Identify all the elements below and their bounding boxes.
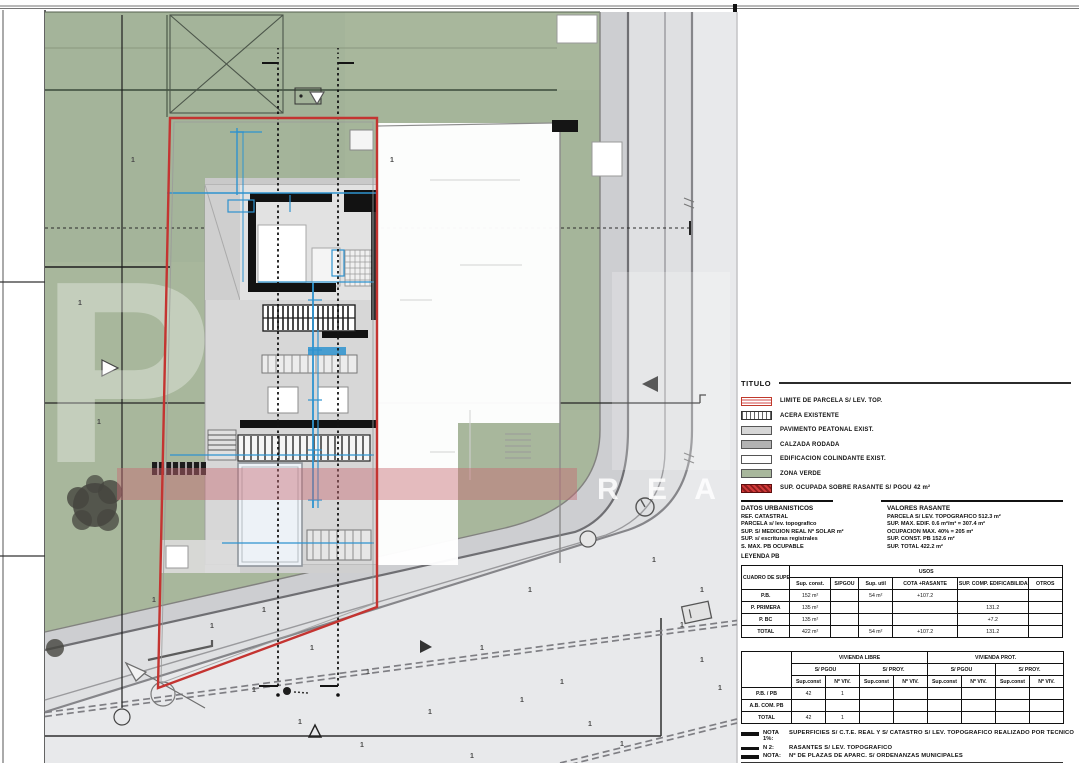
spot-mark: 1	[390, 157, 394, 164]
table-cell	[1028, 614, 1062, 626]
table-cell: USOS	[790, 566, 1063, 578]
info-columns: DATOS URBANISTICOS REF. CATASTRAL PARCEL…	[741, 505, 1071, 563]
spot-mark: 1	[700, 587, 704, 594]
spot-mark: 1	[528, 587, 532, 594]
pole-icon	[283, 687, 291, 695]
legend-row: EDIFICACION COLINDANTE EXIST.	[741, 452, 1071, 467]
drawing-sheet: P R E A 1111111111111111111111111 TITULO…	[0, 0, 1079, 763]
table-cell: A.B. COM. PB	[742, 700, 792, 712]
table-cell: S/ PGOU	[928, 664, 996, 676]
table-cell	[859, 614, 893, 626]
table-cell: P.B. / PB	[742, 688, 792, 700]
table-cell: P. BC	[742, 614, 790, 626]
note-text: RASANTES S/ LEV. TOPOGRAFICO	[789, 745, 892, 751]
valores-block: VALORES RASANTE PARCELA S/ LEV. TOPOGRAF…	[887, 505, 1071, 563]
legend-label: ACERA EXISTENTE	[780, 413, 839, 419]
spot-mark: 1	[152, 597, 156, 604]
table-cell	[830, 626, 858, 638]
spot-mark: 1	[588, 721, 592, 728]
louver-band-1	[263, 305, 355, 331]
datos-header: DATOS URBANISTICOS	[741, 505, 887, 513]
table-cell: CUADRO DE SUPERF.	[742, 566, 790, 590]
spot-mark: 1	[78, 300, 82, 307]
table-cell: 152 m²	[790, 590, 830, 602]
table-cell: COTA +RASANTE	[893, 578, 958, 590]
datos-line: S. MAX. PB OCUPABLE	[741, 544, 887, 552]
table-cell: +7.2	[957, 614, 1028, 626]
table-cell: Sup. util	[859, 578, 893, 590]
valores-header: VALORES RASANTE	[887, 505, 1071, 513]
legend-label: SUP. OCUPADA SOBRE RASANTE S/ PGOU 42 m²	[780, 485, 930, 491]
datos-footer: LEYENDA PB	[741, 554, 887, 562]
valores-line: SUP. MAX. EDIF. 0.6 m²/m² = 307.4 m²	[887, 521, 1071, 529]
datos-block: DATOS URBANISTICOS REF. CATASTRAL PARCEL…	[741, 505, 887, 563]
table-cell	[1030, 700, 1064, 712]
table-cell	[893, 602, 958, 614]
table-cell: Sup.const	[860, 676, 894, 688]
watermark-band	[117, 468, 577, 500]
table-cell	[830, 602, 858, 614]
table-cell: S/ PGOU	[792, 664, 860, 676]
legend: LIMITE DE PARCELA S/ LEV. TOP.ACERA EXIS…	[741, 394, 1071, 496]
datos-line: SUP. S/ MEDICION REAL Nº SOLAR m²	[741, 529, 887, 537]
spot-mark: 1	[718, 685, 722, 692]
legend-swatch-dark-icon	[741, 440, 772, 449]
legend-label: LIMITE DE PARCELA S/ LEV. TOP.	[780, 398, 882, 404]
table-cell: Nº VIV.	[1030, 676, 1064, 688]
note-bar	[741, 747, 759, 751]
legend-label: ZONA VERDE	[780, 471, 821, 477]
table-cell	[894, 688, 928, 700]
section-divider	[741, 500, 1071, 503]
grid-room	[345, 250, 373, 286]
table-cell: 42	[792, 712, 826, 724]
louver-band-3	[307, 530, 371, 560]
table-cell: Nº VIV.	[962, 676, 996, 688]
table-cell: S/ PROY.	[996, 664, 1064, 676]
table-cell: 135 m²	[790, 614, 830, 626]
title-rule	[779, 382, 1071, 384]
legend-title: TITULO	[741, 379, 771, 388]
note-text: SUPERFICIES S/ C.T.E. REAL Y S/ CATASTRO…	[789, 730, 1074, 736]
table-cell: S/PGOU	[830, 578, 858, 590]
legend-label: CALZADA RODADA	[780, 442, 840, 448]
table-cell	[859, 602, 893, 614]
table-cell: 131.2	[957, 602, 1028, 614]
louver-band-2	[238, 435, 370, 461]
legend-row: ACERA EXISTENTE	[741, 409, 1071, 424]
note-label: NOTA 1%:	[763, 730, 789, 742]
table-cell: P. PRIMERA	[742, 602, 790, 614]
table-cell	[1030, 712, 1064, 724]
table-cell: VIVIENDA LIBRE	[792, 652, 928, 664]
spot-mark: 1	[700, 657, 704, 664]
table-cell	[928, 700, 962, 712]
legend-row: CALZADA RODADA	[741, 438, 1071, 453]
table-cell	[1028, 602, 1062, 614]
stripe-band	[262, 355, 357, 373]
note-bar	[741, 755, 759, 759]
table-cell: Nº VIV.	[826, 676, 860, 688]
spot-mark: 1	[360, 742, 364, 749]
spot-mark: 1	[310, 645, 314, 652]
manhole-icon	[580, 531, 596, 547]
table-cell	[1030, 688, 1064, 700]
site-plan-drawing: P R E A 1111111111111111111111111	[0, 0, 740, 763]
table-cell: 131.2	[957, 626, 1028, 638]
table-cell	[826, 700, 860, 712]
table-cell: 54 m²	[859, 590, 893, 602]
legend-row: LIMITE DE PARCELA S/ LEV. TOP.	[741, 394, 1071, 409]
spot-mark: 1	[97, 419, 101, 426]
table-cell	[830, 614, 858, 626]
spot-mark: 1	[262, 607, 266, 614]
legend-label: EDIFICACION COLINDANTE EXIST.	[780, 456, 886, 462]
table-cell	[962, 688, 996, 700]
legend-swatch-white-icon	[741, 455, 772, 464]
spot-mark: 1	[131, 157, 135, 164]
table-cell: SUP. COMP. EDIFICABILIDAD	[957, 578, 1028, 590]
table-cell: P.B.	[742, 590, 790, 602]
table-cell: OTROS	[1028, 578, 1062, 590]
table-cell: S/ PROY.	[860, 664, 928, 676]
table-cell	[996, 688, 1030, 700]
table-cell	[894, 700, 928, 712]
table-cell: Sup.const	[792, 676, 826, 688]
table-cell: 42	[792, 688, 826, 700]
table-cell	[957, 590, 1028, 602]
spot-mark: 1	[520, 697, 524, 704]
spot-mark: 1	[680, 622, 684, 629]
table-cell	[962, 700, 996, 712]
table-cell: TOTAL	[742, 712, 792, 724]
table-cell	[962, 712, 996, 724]
note-row: NOTA: Nº DE PLAZAS DE APARC. S/ ORDENANZ…	[741, 753, 1071, 759]
spot-mark: 1	[366, 669, 370, 676]
spot-mark: 1	[210, 623, 214, 630]
table-cell: TOTAL	[742, 626, 790, 638]
viviendas-table: VIVIENDA LIBREVIVIENDA PROT.S/ PGOUS/ PR…	[741, 651, 1064, 724]
table-cell	[894, 712, 928, 724]
table-cell	[928, 712, 962, 724]
note-label: NOTA:	[763, 753, 789, 759]
datos-line: SUP. s/ escrituras registrales	[741, 536, 887, 544]
valores-line: SUP. CONST. PB 152.6 m²	[887, 536, 1071, 544]
table-cell	[830, 590, 858, 602]
table-cell	[928, 688, 962, 700]
legend-row: PAVIMENTO PEATONAL EXIST.	[741, 423, 1071, 438]
legend-swatch-light-icon	[741, 426, 772, 435]
spot-mark: 1	[428, 709, 432, 716]
note-row: N 2: RASANTES S/ LEV. TOPOGRAFICO	[741, 745, 1071, 751]
legend-row: ZONA VERDE	[741, 467, 1071, 482]
table-cell: 1	[826, 712, 860, 724]
table-cell	[792, 700, 826, 712]
legend-swatch-dash-icon	[741, 411, 772, 420]
note-bar	[741, 732, 759, 736]
legend-swatch-green-icon	[741, 469, 772, 478]
spot-mark: 1	[470, 753, 474, 760]
table-cell: Sup.const	[928, 676, 962, 688]
legend-swatch-occupied-icon	[741, 484, 772, 493]
note-text: Nº DE PLAZAS DE APARC. S/ ORDENANZAS MUN…	[789, 753, 963, 759]
spot-mark: 1	[480, 645, 484, 652]
table-cell	[1028, 626, 1062, 638]
legend-row: SUP. OCUPADA SOBRE RASANTE S/ PGOU 42 m²	[741, 481, 1071, 496]
table-cell	[860, 712, 894, 724]
table-cell	[996, 700, 1030, 712]
legend-title-row: TITULO	[741, 378, 1071, 388]
table-cell: Sup. const.	[790, 578, 830, 590]
areas-table: CUADRO DE SUPERF.USOSSup. const.S/PGOUSu…	[741, 565, 1063, 638]
legend-label: PAVIMENTO PEATONAL EXIST.	[780, 427, 874, 433]
spot-mark: 1	[298, 719, 302, 726]
table-cell: 135 m²	[790, 602, 830, 614]
table-cell: Nº VIV.	[894, 676, 928, 688]
table-cell: 54 m²	[859, 626, 893, 638]
datos-line: REF. CATASTRAL	[741, 514, 887, 522]
note-label: N 2:	[763, 745, 789, 751]
spot-mark: 1	[620, 741, 624, 748]
table-cell	[860, 688, 894, 700]
table-cell	[1028, 590, 1062, 602]
table-cell: VIVIENDA PROT.	[928, 652, 1064, 664]
table-cell	[742, 652, 792, 688]
spot-mark: 1	[652, 557, 656, 564]
legend-swatch-boundary-icon	[741, 397, 772, 406]
note-row: NOTA 1%: SUPERFICIES S/ C.T.E. REAL Y S/…	[741, 730, 1071, 742]
spot-mark: 1	[252, 687, 256, 694]
spot-mark: 1	[560, 679, 564, 686]
table-cell	[996, 712, 1030, 724]
table-cell	[860, 700, 894, 712]
table-cell: 1	[826, 688, 860, 700]
table-cell: +107.2	[893, 626, 958, 638]
notes: NOTA 1%: SUPERFICIES S/ C.T.E. REAL Y S/…	[741, 730, 1071, 759]
watermark-rea: R E A	[597, 473, 726, 506]
datos-line: PARCELA s/ lev. topografico	[741, 521, 887, 529]
table-cell: 422 m²	[790, 626, 830, 638]
valores-line: SUP. TOTAL 422.2 m²	[887, 544, 1071, 552]
table-cell	[893, 614, 958, 626]
title-block-panel: TITULO LIMITE DE PARCELA S/ LEV. TOP.ACE…	[741, 0, 1071, 763]
table-cell: Sup.const	[996, 676, 1030, 688]
table-cell: +107.2	[893, 590, 958, 602]
